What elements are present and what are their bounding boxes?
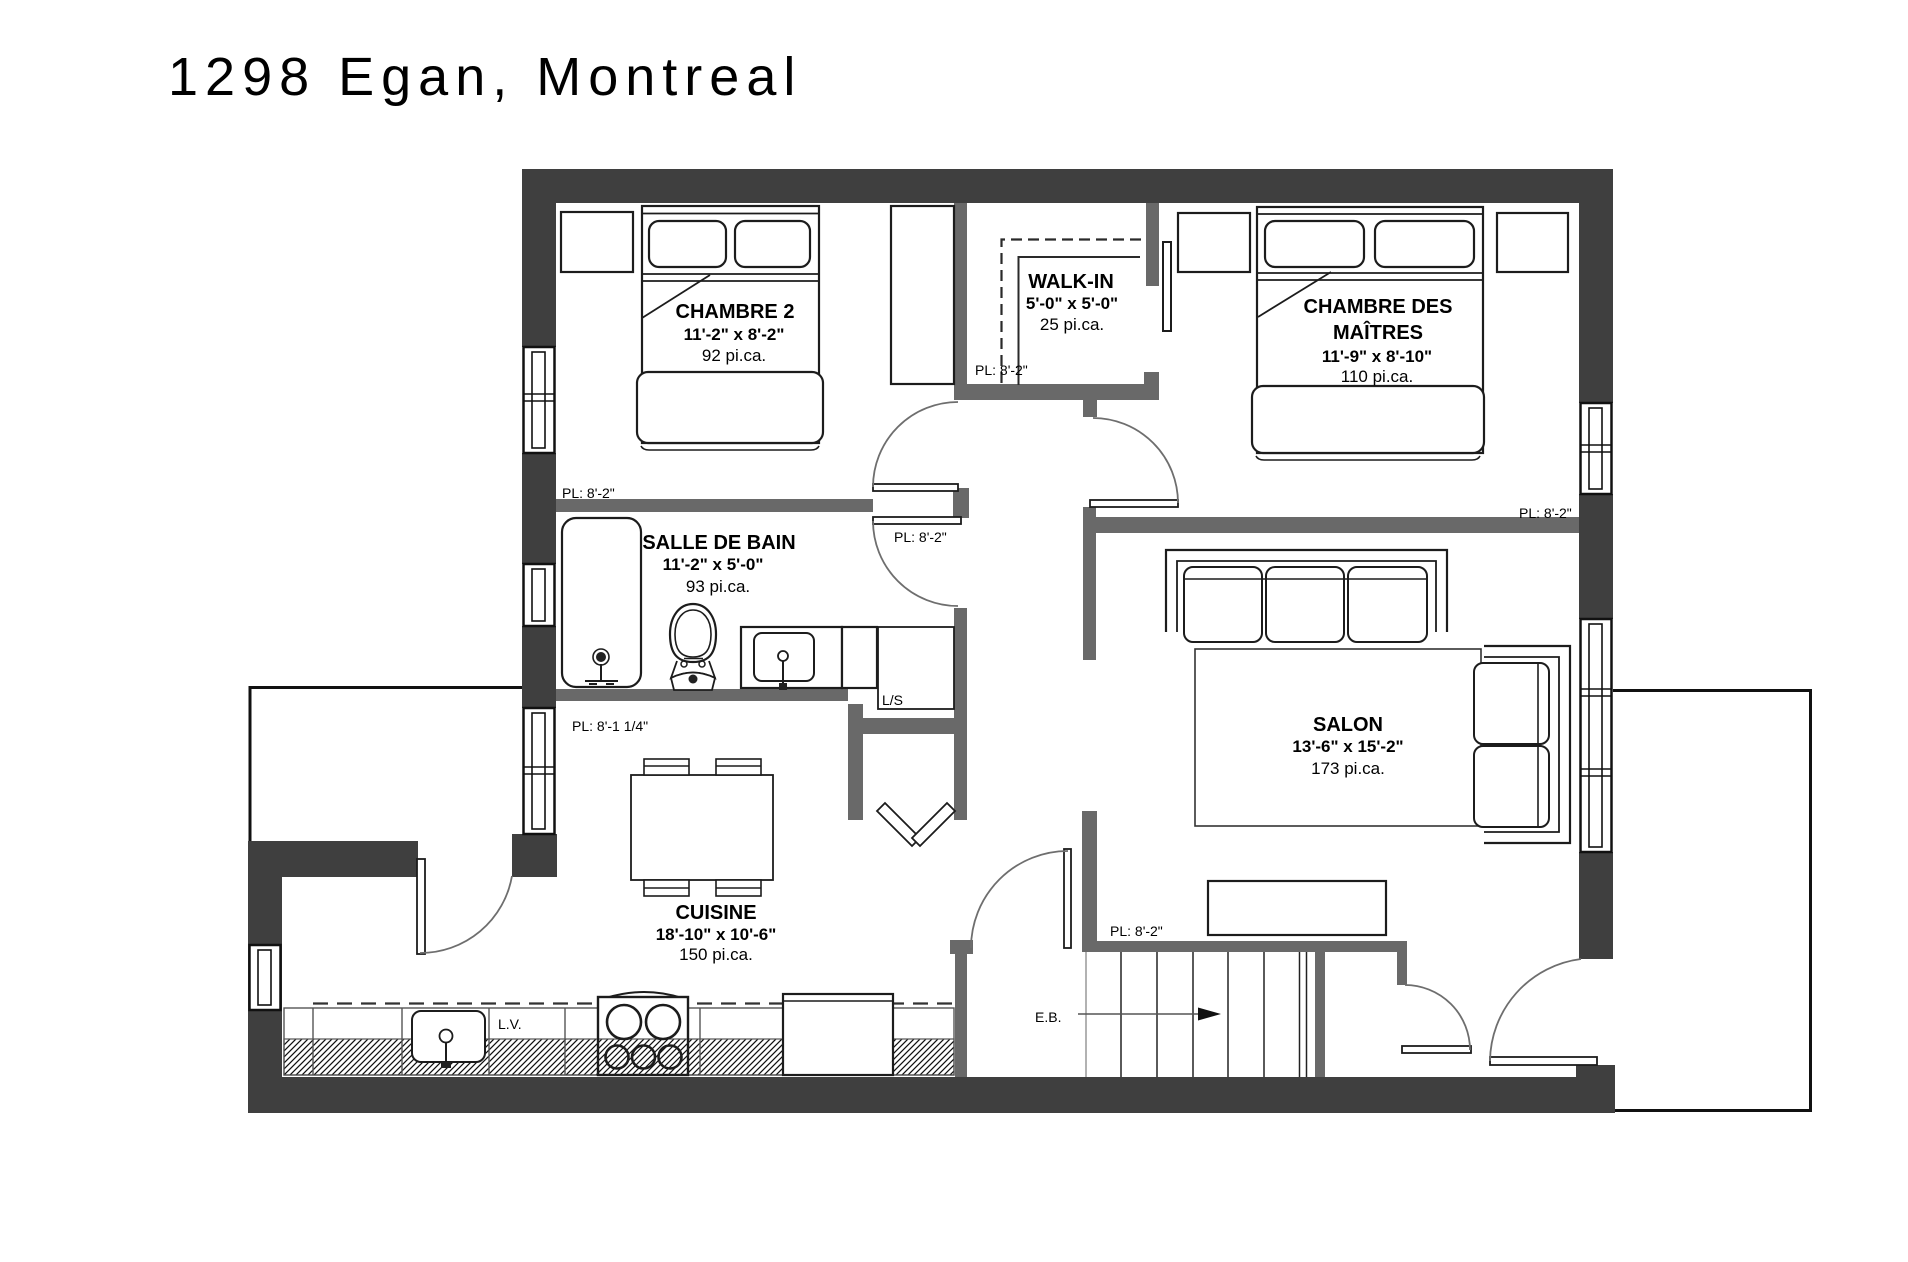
svg-text:5'-0" x 5'-0": 5'-0" x 5'-0" [1026,294,1118,313]
svg-text:PL: 8'-2": PL: 8'-2" [1519,505,1572,521]
svg-text:11'-9" x 8'-10": 11'-9" x 8'-10" [1322,347,1432,366]
svg-text:WALK-IN: WALK-IN [1028,271,1114,293]
svg-text:93 pi.ca.: 93 pi.ca. [686,577,750,596]
svg-text:SALON: SALON [1313,714,1383,736]
svg-text:173 pi.ca.: 173 pi.ca. [1311,759,1385,778]
svg-text:CHAMBRE DES: CHAMBRE DES [1304,296,1453,318]
svg-text:18'-10" x 10'-6": 18'-10" x 10'-6" [656,925,777,944]
svg-text:L.V.: L.V. [498,1016,522,1032]
svg-text:150 pi.ca.: 150 pi.ca. [679,945,753,964]
svg-text:11'-2" x 8'-2": 11'-2" x 8'-2" [684,325,785,344]
svg-text:SALLE DE BAIN: SALLE DE BAIN [642,532,795,554]
svg-text:25 pi.ca.: 25 pi.ca. [1040,315,1104,334]
svg-text:MAÎTRES: MAÎTRES [1333,320,1423,344]
svg-text:E.B.: E.B. [1035,1009,1061,1025]
svg-text:PL: 8'-2": PL: 8'-2" [562,485,615,501]
svg-text:PL: 8'-2": PL: 8'-2" [894,529,947,545]
svg-text:CUISINE: CUISINE [675,902,756,924]
svg-text:PL: 8'-2": PL: 8'-2" [1110,923,1163,939]
svg-text:PL: 8'-1 1/4": PL: 8'-1 1/4" [572,718,648,734]
svg-text:13'-6" x 15'-2": 13'-6" x 15'-2" [1292,737,1403,756]
svg-text:92 pi.ca.: 92 pi.ca. [702,346,766,365]
svg-text:110 pi.ca.: 110 pi.ca. [1341,367,1413,386]
svg-text:PL: 8'-2": PL: 8'-2" [975,362,1028,378]
svg-text:L/S: L/S [882,692,903,708]
svg-text:11'-2" x 5'-0": 11'-2" x 5'-0" [663,555,764,574]
svg-text:1298 Egan, Montreal: 1298 Egan, Montreal [168,47,802,107]
svg-text:CHAMBRE 2: CHAMBRE 2 [676,301,795,323]
